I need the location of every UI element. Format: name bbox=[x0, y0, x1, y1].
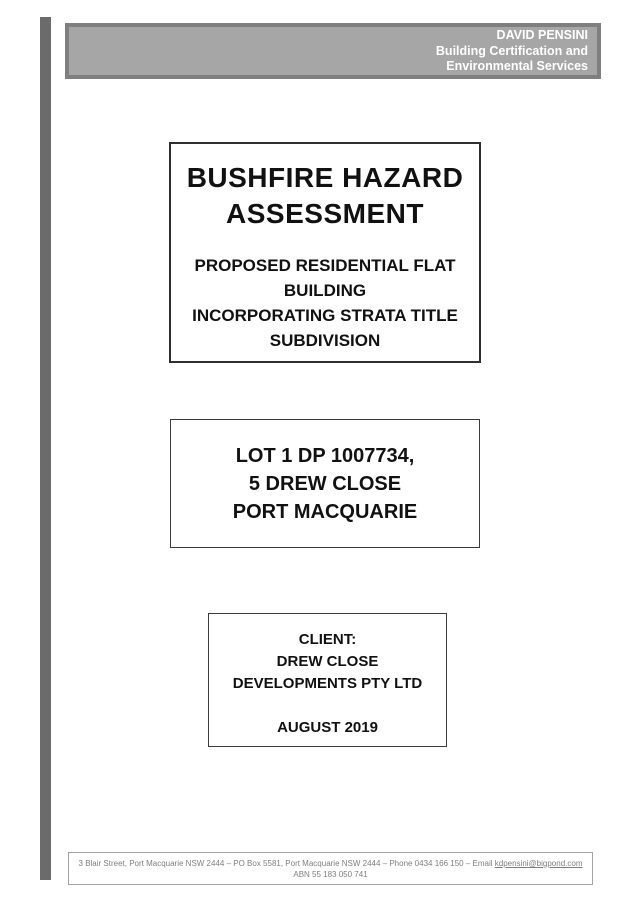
client-label: CLIENT: bbox=[209, 629, 446, 651]
property-city-line: PORT MACQUARIE bbox=[171, 498, 479, 526]
footer-contact-line: 3 Blair Street, Port Macquarie NSW 2444 … bbox=[69, 858, 592, 869]
footer-contact-text: 3 Blair Street, Port Macquarie NSW 2444 … bbox=[79, 859, 495, 868]
report-title-line2: ASSESSMENT bbox=[171, 196, 479, 232]
report-title-line1: BUSHFIRE HAZARD bbox=[171, 160, 479, 196]
client-box-spacer bbox=[209, 695, 446, 717]
report-subtitle: PROPOSED RESIDENTIAL FLAT BUILDING INCOR… bbox=[171, 253, 479, 353]
left-accent-bar bbox=[40, 17, 51, 880]
company-header: DAVID PENSINI Building Certification and… bbox=[65, 23, 601, 79]
property-address-box: LOT 1 DP 1007734, 5 DREW CLOSE PORT MACQ… bbox=[170, 419, 480, 548]
footer-contact-bar: 3 Blair Street, Port Macquarie NSW 2444 … bbox=[68, 852, 593, 885]
report-subtitle-line1: PROPOSED RESIDENTIAL FLAT bbox=[171, 253, 479, 278]
report-date: AUGUST 2019 bbox=[209, 717, 446, 739]
report-title: BUSHFIRE HAZARD ASSESSMENT bbox=[171, 160, 479, 232]
client-name-line2: DEVELOPMENTS PTY LTD bbox=[209, 673, 446, 695]
report-subtitle-line2: BUILDING bbox=[171, 278, 479, 303]
client-name-line1: DREW CLOSE bbox=[209, 651, 446, 673]
client-box: CLIENT: DREW CLOSE DEVELOPMENTS PTY LTD … bbox=[208, 613, 447, 747]
report-subtitle-line4: SUBDIVISION bbox=[171, 328, 479, 353]
footer-abn: ABN 55 183 050 741 bbox=[69, 869, 592, 880]
document-page: DAVID PENSINI Building Certification and… bbox=[0, 0, 635, 907]
report-subtitle-line3: INCORPORATING STRATA TITLE bbox=[171, 303, 479, 328]
email-link[interactable]: kdpensini@bigpond.com bbox=[495, 859, 583, 868]
company-tagline-line1: Building Certification and bbox=[69, 44, 588, 60]
report-title-box: BUSHFIRE HAZARD ASSESSMENT PROPOSED RESI… bbox=[169, 142, 481, 363]
company-tagline-line2: Environmental Services bbox=[69, 59, 588, 75]
company-name: DAVID PENSINI bbox=[69, 28, 588, 44]
property-lot-line: LOT 1 DP 1007734, bbox=[171, 442, 479, 470]
property-street-line: 5 DREW CLOSE bbox=[171, 470, 479, 498]
